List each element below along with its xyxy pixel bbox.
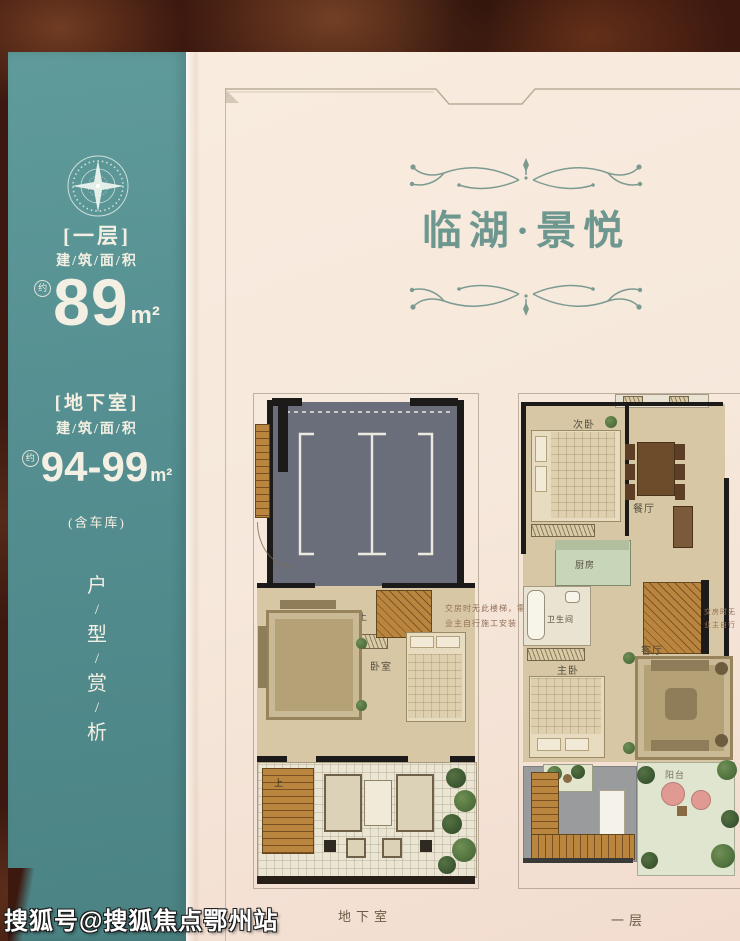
floor1-tag: [一层] — [8, 220, 186, 250]
wall — [521, 402, 526, 554]
first-floor-caption: 一层 — [518, 910, 740, 929]
bed-pillow — [535, 466, 547, 492]
annotation-line: 业主自行施工安装 — [445, 616, 526, 631]
round-table — [691, 790, 711, 810]
bed-pillow — [565, 738, 589, 751]
cabinet — [673, 506, 693, 548]
balcony-label: 阳台 — [665, 768, 685, 781]
shrub — [452, 838, 476, 862]
shrub — [711, 844, 735, 868]
wall — [457, 400, 464, 588]
patio-table — [364, 780, 392, 826]
basement-annotation: 交房时无此楼梯，需 业主自行施工安装 — [445, 601, 526, 631]
wall — [278, 406, 288, 472]
dining-chair — [675, 464, 685, 480]
shrub — [717, 760, 737, 780]
floorplan-first-floor: 次卧 餐厅 厨房 卫生间 — [518, 393, 740, 889]
parking-marks-icon — [272, 402, 458, 586]
side-table — [420, 840, 432, 852]
sidebar-panel: [一层] 建/筑/面/积 约 89 m² [地下室] 建/筑/面/积 约 94-… — [8, 52, 186, 941]
approx-badge: 约 — [34, 280, 51, 297]
poster-photo: [一层] 建/筑/面/积 约 89 m² [地下室] 建/筑/面/积 约 94-… — [0, 0, 740, 941]
wall — [382, 583, 475, 588]
floor-lamp — [715, 662, 728, 675]
bed-pillow — [535, 436, 547, 462]
door-arc — [257, 522, 292, 567]
sofa — [280, 600, 336, 609]
plant — [605, 416, 617, 428]
plant — [356, 700, 367, 711]
slogan-char: 户 — [87, 576, 107, 596]
sofa — [258, 626, 267, 688]
wall — [257, 583, 315, 588]
kitchen-counter — [555, 540, 629, 550]
dining-chair — [625, 444, 635, 460]
dining-chair — [625, 464, 635, 480]
slogan-char: 赏 — [87, 674, 107, 694]
bathtub — [527, 590, 545, 640]
vertical-slogan: 户 / 型 / 赏 / 析 — [72, 572, 122, 747]
wall — [272, 398, 302, 406]
dining-chair — [625, 484, 635, 500]
bed-pillow — [436, 636, 460, 648]
brochure-page: 临湖·景悦 — [186, 52, 740, 941]
wall — [410, 398, 458, 406]
wardrobe — [527, 648, 585, 661]
second-bedroom-label: 次卧 — [573, 416, 595, 431]
wall — [724, 478, 729, 660]
sofa — [651, 740, 709, 751]
slogan-slash: / — [95, 701, 99, 716]
stair-up-label: 上 — [274, 776, 283, 789]
basement-unit: m² — [150, 465, 172, 486]
floorplan-basement: 上 卧室 上 — [253, 393, 479, 889]
dining-chair — [675, 444, 685, 460]
dining-label: 餐厅 — [633, 500, 655, 515]
patio-stairs — [262, 768, 314, 854]
base-wall — [523, 858, 633, 863]
basement-number: 94-99 — [41, 448, 148, 486]
shrub — [446, 768, 466, 788]
master-bedroom-label: 主卧 — [557, 662, 579, 677]
annotation-line: 业主自行 — [704, 619, 736, 632]
base-wall — [257, 876, 475, 884]
terrace-stairs — [531, 834, 635, 860]
interior-stairs — [376, 590, 432, 638]
first-floor-annotation: 交房时无 业主自行 — [704, 606, 736, 632]
page-border-vertical — [225, 88, 226, 941]
page-edge-highlight — [186, 52, 200, 941]
flower-pot — [563, 774, 572, 783]
plant — [571, 765, 585, 779]
plant — [623, 742, 635, 754]
bedroom-label: 卧室 — [370, 658, 392, 673]
art-mat — [599, 790, 625, 838]
dining-table — [637, 442, 675, 496]
patio-sofa — [324, 774, 362, 832]
watermark: 搜狐号@搜狐焦点鄂州站 — [4, 901, 278, 936]
coffee-table — [665, 688, 697, 720]
side-stairs — [255, 424, 270, 518]
living-label: 客厅 — [641, 642, 663, 657]
shrub — [641, 852, 658, 869]
bed-pillow — [410, 636, 434, 648]
living-rug — [266, 610, 362, 720]
shrub — [637, 766, 655, 784]
garage-note: (含车库) — [8, 512, 186, 531]
terrace-stairs — [531, 772, 559, 836]
side-table — [324, 840, 336, 852]
slogan-char: 析 — [87, 723, 107, 743]
round-table — [661, 782, 685, 806]
side-table — [677, 806, 687, 816]
shrub — [454, 790, 476, 812]
plant — [623, 652, 635, 664]
dining-chair — [675, 484, 685, 500]
shrub — [442, 814, 462, 834]
shrub — [438, 856, 456, 874]
floor1-unit: m² — [131, 302, 160, 330]
bed-blanket — [531, 678, 601, 734]
slogan-slash: / — [95, 603, 99, 618]
toilet — [565, 591, 580, 603]
floor-lamp — [715, 734, 728, 747]
basement-caption: 地下室 — [253, 906, 477, 925]
annotation-line: 交房时无 — [704, 606, 736, 619]
bed-blanket — [408, 654, 462, 718]
basement-tag: [地下室] — [8, 388, 186, 415]
bathroom-label: 卫生间 — [547, 614, 574, 625]
patio-sofa — [396, 774, 434, 832]
bed-blanket — [551, 432, 615, 518]
wardrobe — [531, 524, 595, 537]
approx-badge: 约 — [22, 450, 39, 467]
garage-area — [272, 402, 458, 586]
annotation-line: 交房时无此楼梯，需 — [445, 601, 526, 616]
shrub — [721, 810, 739, 828]
patio-chair — [346, 838, 366, 858]
bed-pillow — [537, 738, 561, 751]
wall — [523, 402, 723, 406]
page-border-line — [186, 52, 740, 112]
slogan-char: 型 — [87, 625, 107, 645]
floor1-number: 89 — [53, 274, 128, 330]
slogan-slash: / — [95, 652, 99, 667]
project-title: 临湖·景悦 — [336, 198, 716, 256]
sofa — [651, 660, 709, 671]
basement-area-words: 建/筑/面/积 — [8, 418, 186, 438]
patio-chair — [382, 838, 402, 858]
plant — [356, 638, 367, 649]
flourish-top-icon — [403, 156, 649, 200]
flourish-bottom-icon — [403, 274, 649, 318]
kitchen-label: 厨房 — [575, 558, 595, 571]
floor1-area-value: 约 89 m² — [8, 274, 186, 330]
basement-area-value: 约 94-99 m² — [8, 448, 186, 486]
